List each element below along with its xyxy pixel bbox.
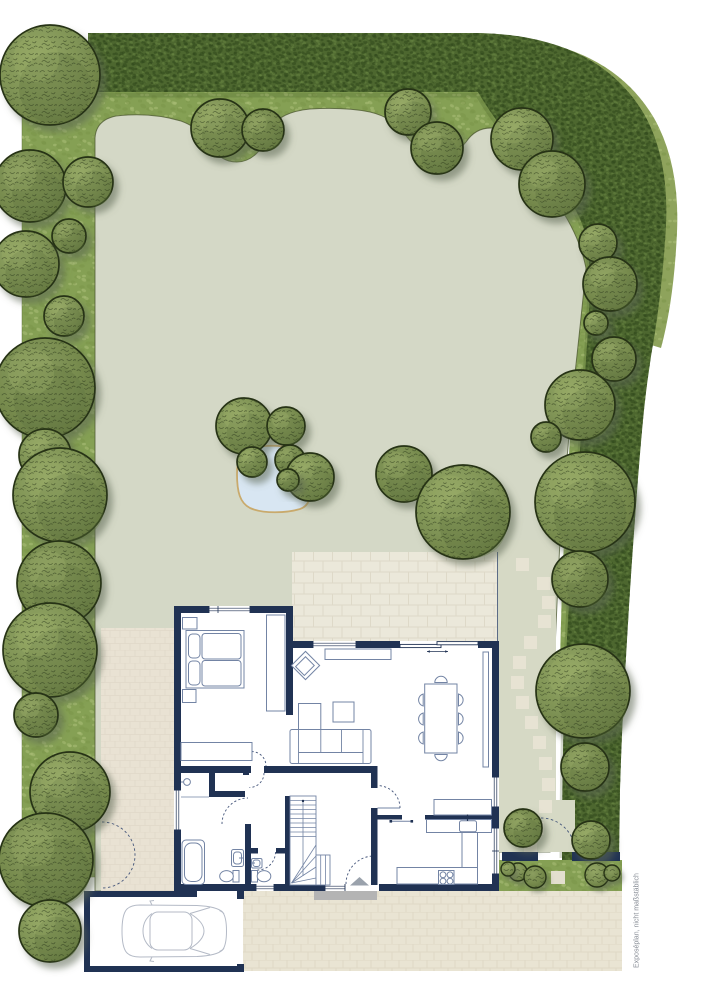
svg-text:Exposéplan, nicht maßstäblich: Exposéplan, nicht maßstäblich — [634, 873, 641, 968]
